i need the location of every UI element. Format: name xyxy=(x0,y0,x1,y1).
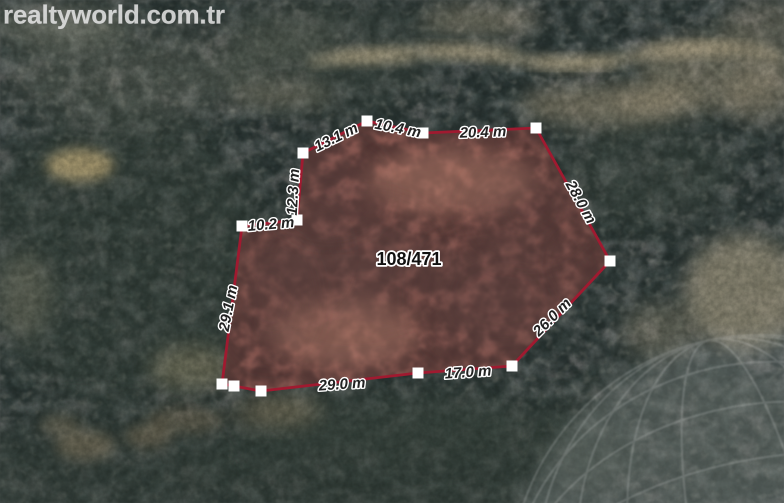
svg-text:17.0 m: 17.0 m xyxy=(444,362,492,382)
svg-text:realtyworld.com.tr: realtyworld.com.tr xyxy=(3,0,225,30)
svg-text:12.3 m: 12.3 m xyxy=(284,168,303,216)
svg-text:108/471: 108/471 xyxy=(376,249,441,269)
svg-text:29.0 m: 29.0 m xyxy=(317,374,366,394)
svg-text:20.4 m: 20.4 m xyxy=(458,123,506,142)
